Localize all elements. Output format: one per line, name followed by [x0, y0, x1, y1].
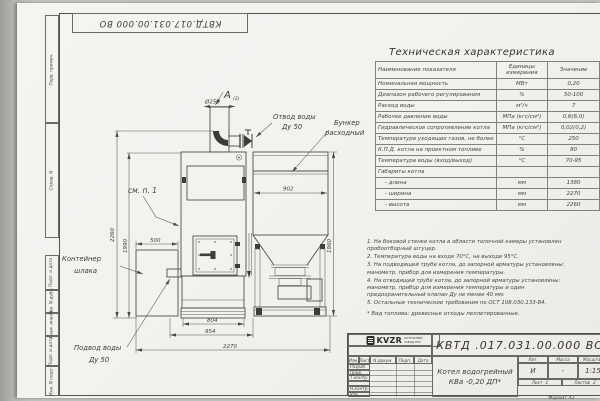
product-name: Котел водогрейный КВа -0,20 ДП* [432, 356, 518, 397]
title-block: КВТД .017.031.00.000 ВО Котел водогрейны… [347, 333, 600, 396]
chimney-and-outlet [210, 107, 252, 152]
dim-2260: 2260 [110, 228, 116, 242]
table-row: Гидравлическое сопротивление котлаМПа (к… [376, 123, 600, 134]
format-label: Формат А3 [509, 396, 600, 401]
note-line: 2. Температура воды на входе 70°С, на вы… [367, 254, 583, 261]
tech-table: Наименование показателя Единицы измерени… [375, 61, 600, 211]
slag-container [136, 250, 178, 316]
table-row: Температура воды (вход/выход)°С70-95 [376, 156, 600, 167]
label-water-outlet: Отвод воды [273, 113, 316, 121]
dim-2270: 2270 [223, 344, 237, 350]
dim-250: Ø250 [204, 99, 220, 106]
technical-notes: 1. На боковой стенке котла в области топ… [367, 239, 583, 308]
top-doc-number-box: КВТД.017.031.00.000 ВО [72, 13, 248, 33]
table-row: К.П.Д. котла на проектном топливе%80 [376, 145, 600, 156]
dim-1990: 1990 [123, 239, 129, 253]
margin-box-sprav-n: Справ. N [45, 123, 59, 238]
dim-804: 804 [207, 318, 218, 324]
dim-954: 954 [205, 329, 216, 335]
boiler-drawing: Ø250 А (2) 2260 1990 500 902 196 [61, 79, 377, 365]
title-block-doc-number: КВТД .017.031.00.000 ВО [432, 334, 600, 356]
note-line: 3. На подводящей трубе котла, до запорно… [367, 262, 583, 276]
dim-902: 902 [283, 187, 294, 193]
label-slag-container-2: шлака [74, 267, 97, 275]
lit-label: Лит. [518, 356, 548, 363]
mass-value: - [548, 363, 578, 379]
note-line: 1. На боковой стенке котла в области топ… [367, 239, 583, 253]
signature-grid-lines [370, 364, 432, 397]
label-see-note-1: см. п. 1 [128, 186, 157, 195]
label-bunker-2: расходный [324, 129, 365, 137]
col-ndocum: N докум. [370, 356, 396, 364]
table-row: - ширинамм2270 [376, 189, 600, 200]
top-doc-number: КВТД.017.031.00.000 ВО [99, 18, 221, 28]
boiler-body [167, 152, 252, 318]
label-water-outlet-dn: Ду 50 [281, 123, 302, 131]
label-slag-container-1: Контейнер [62, 255, 101, 263]
fuel-bunker [253, 152, 328, 316]
mass-label: Масса [548, 356, 578, 363]
tech-table-header-row: Наименование показателя Единицы измерени… [376, 62, 600, 79]
view-a-ref: (2) [233, 96, 240, 102]
drawing-sheet: КВТД.017.031.00.000 ВО Перв. примен. Спр… [17, 3, 600, 398]
table-row: Температура уходящих газов, не более°С25… [376, 134, 600, 145]
label-bunker-1: Бункер [334, 119, 360, 127]
col-izm: Изм. [348, 356, 359, 364]
dimension-lines: Ø250 А (2) 2260 1990 500 902 196 [110, 90, 337, 353]
note-line: 5. Остальные технические требования по О… [367, 300, 583, 307]
col-list: Лист [359, 356, 370, 364]
table-row: Габариты котла [376, 167, 600, 178]
sign-row-utv: Утв. [348, 392, 370, 398]
table-row: Диапазон рабочего регулирования%50-100 [376, 90, 600, 101]
table-row: Рабочее давление водыМПа (кгс/см²)0,6(6,… [376, 112, 600, 123]
table-row: - высотамм2260 [376, 200, 600, 211]
margin-box-inv-podl: Инв. N подл. [45, 366, 59, 396]
margin-box-podp-data-2: Подп. и дата [45, 336, 59, 366]
dim-500: 500 [150, 238, 161, 244]
label-water-inlet: Подвод воды [74, 344, 122, 352]
col-data: Дата [414, 356, 432, 364]
table-row: Расход водым³/ч7 [376, 101, 600, 112]
margin-box-vzam-inv: Взам. инв. N [45, 313, 59, 336]
label-water-inlet-dn: Ду 50 [88, 356, 109, 364]
callout-labels: Отвод воды Ду 50 Бункер расходный см. п.… [62, 113, 365, 364]
fuel-footnote: * Вид топлива: древесные отходы пеллетир… [367, 311, 583, 317]
tech-table-title: Техническая характеристика [369, 47, 575, 58]
dim-1960: 1960 [327, 239, 333, 253]
note-line: 4. На отводящей трубе котла, до запорной… [367, 278, 583, 299]
sheet-cell: Лист 1 [518, 379, 562, 386]
view-a-letter: А [223, 90, 231, 101]
scale-label: Масштаб [578, 356, 600, 363]
table-row: - длинамм1380 [376, 178, 600, 189]
scale-value: 1:15 [578, 363, 600, 379]
sheets-cell: Листов 2 [562, 379, 600, 386]
table-row: Номинальная мощностьМВт0,20 [376, 79, 600, 90]
margin-box-perv-primen: Перв. примен. [45, 15, 59, 123]
margin-box-podp-data-1: Подп. и дата [45, 255, 59, 290]
lit-value: И [518, 363, 548, 379]
col-podp: Подп. [396, 356, 414, 364]
